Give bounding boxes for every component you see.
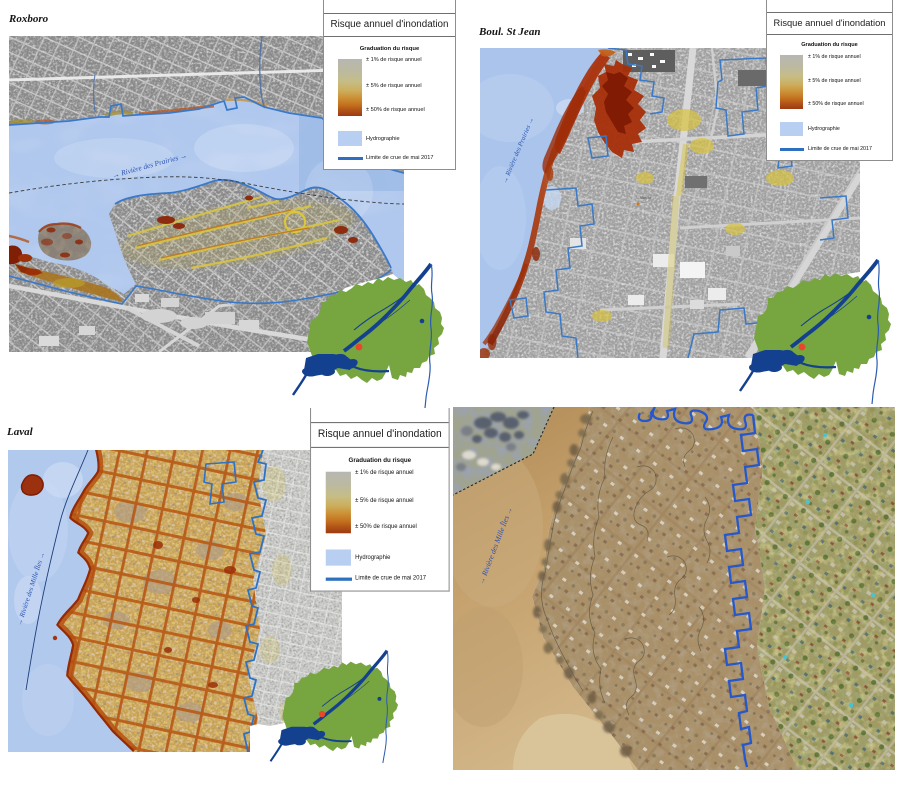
svg-text:Marché: Marché — [640, 196, 652, 200]
